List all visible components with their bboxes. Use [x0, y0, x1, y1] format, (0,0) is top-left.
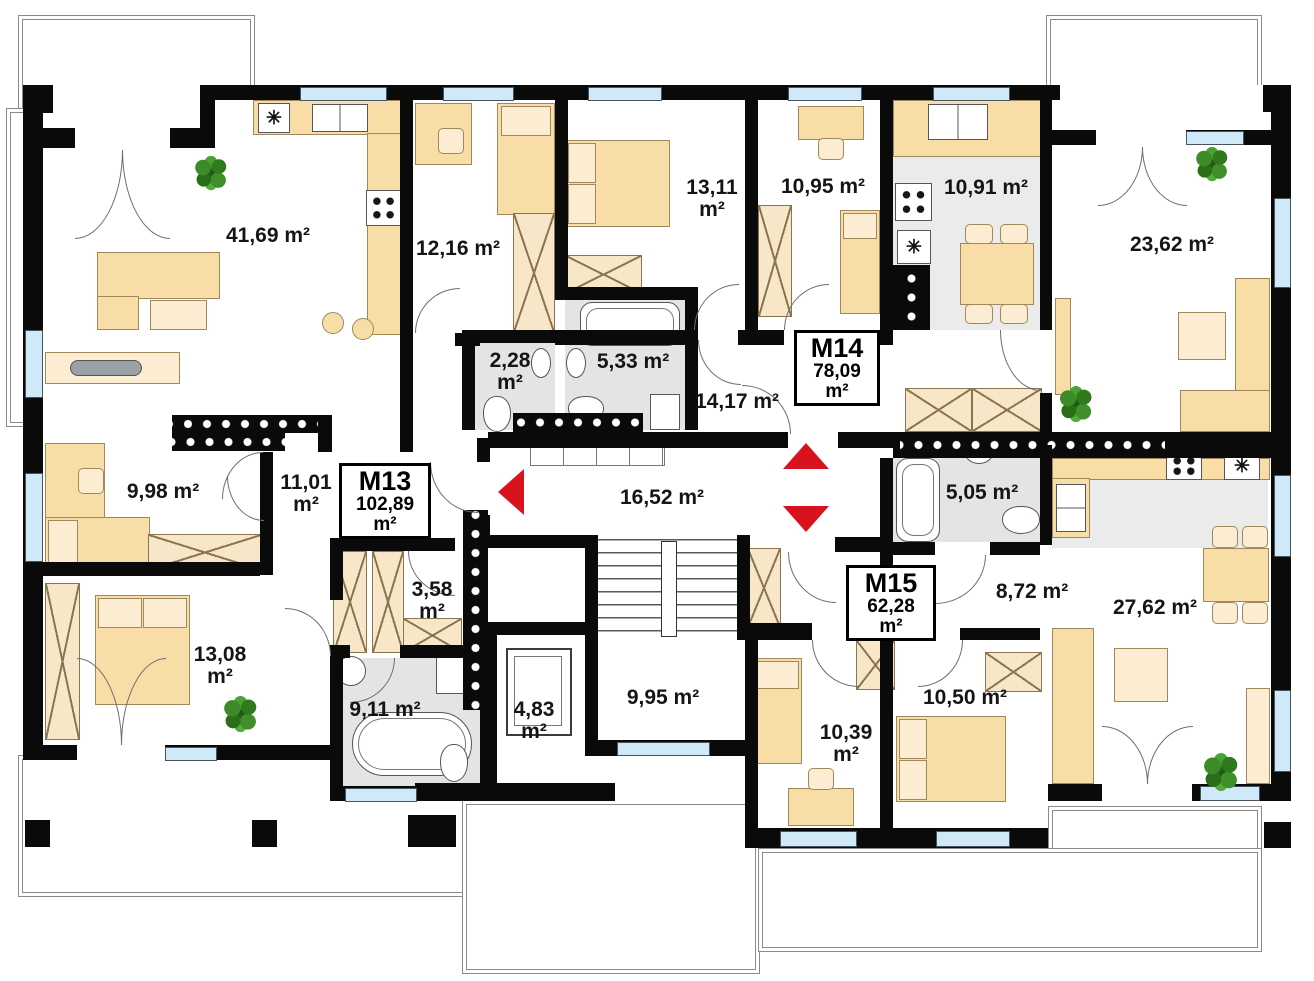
- toilet: [1002, 506, 1040, 534]
- wall: [880, 85, 893, 330]
- wall: [488, 432, 788, 448]
- kitchen-sink: [928, 104, 988, 140]
- tv-cabinet: [1246, 688, 1270, 784]
- pillow: [899, 719, 927, 759]
- window: [780, 831, 857, 847]
- wall: [585, 535, 598, 756]
- window: [1274, 690, 1291, 772]
- chair: [818, 138, 844, 160]
- fridge-icon: ✳: [258, 103, 290, 133]
- apartment-code: M15: [855, 569, 927, 597]
- wall: [330, 652, 343, 786]
- room-label-13-08: 13,08 m²: [194, 644, 247, 688]
- window: [1274, 198, 1291, 288]
- pillow: [568, 143, 596, 183]
- plant-icon: [222, 695, 259, 733]
- apartment-label-m14: M14 78,09 m²: [794, 330, 880, 406]
- apartment-code: M13: [348, 467, 422, 495]
- wardrobe: [747, 548, 781, 628]
- tv-cabinet: [1055, 298, 1071, 395]
- kitchen-counter: [367, 133, 402, 335]
- window: [345, 788, 417, 802]
- stair-stringer: [661, 541, 677, 637]
- window: [443, 87, 514, 101]
- room-label-12-16: 12,16 m²: [416, 238, 500, 260]
- cabinet-dotted: [893, 265, 930, 330]
- chair: [1212, 526, 1238, 548]
- room-label-3-58: 3,58 m²: [412, 579, 453, 623]
- glass-block-wall: [513, 413, 643, 432]
- room-label-8-72: 8,72 m²: [996, 581, 1068, 603]
- wall: [1040, 100, 1052, 330]
- plant-icon: [193, 155, 229, 191]
- room-label-10-50: 10,50 m²: [923, 687, 1007, 709]
- room-label-13-11: 13,11 m²: [686, 177, 737, 221]
- wall: [455, 333, 480, 346]
- wall: [400, 335, 413, 452]
- door-opening: [77, 743, 165, 762]
- chair: [965, 224, 993, 244]
- wall: [990, 542, 1040, 555]
- room-label-10-91: 10,91 m²: [944, 177, 1028, 199]
- window: [936, 831, 1010, 847]
- wall: [415, 783, 615, 801]
- chair: [965, 304, 993, 324]
- sofa: [97, 252, 220, 299]
- window: [1274, 475, 1291, 557]
- elevator-up-arrow-icon: [783, 443, 829, 469]
- glass-block-wall: [172, 415, 318, 433]
- apartment-area: 62,28 m²: [855, 597, 927, 637]
- wall: [745, 640, 758, 828]
- wall: [330, 551, 343, 600]
- glass-block-wall: [900, 437, 1165, 453]
- room-label-5-05: 5,05 m²: [946, 482, 1018, 504]
- wall: [555, 85, 568, 300]
- washbasin: [566, 348, 586, 378]
- stove-icon: [366, 190, 401, 226]
- wall: [200, 85, 215, 148]
- stool: [352, 318, 374, 340]
- pouf: [1114, 648, 1168, 702]
- room-label-10-95: 10,95 m²: [781, 176, 865, 198]
- chair: [78, 468, 104, 494]
- window: [588, 87, 662, 101]
- apartment-area: 78,09 m²: [803, 362, 871, 402]
- room-label-4-83: 4,83 m²: [514, 699, 555, 743]
- wardrobe: [372, 551, 404, 653]
- glass-block-wall: [172, 433, 285, 451]
- pillow: [843, 213, 877, 239]
- elevator-down-arrow-icon: [783, 506, 829, 532]
- wall: [880, 640, 893, 828]
- window: [617, 742, 710, 756]
- apartment-label-m13: M13 102,89 m²: [339, 463, 431, 539]
- chair: [438, 128, 464, 154]
- pillow: [143, 598, 187, 628]
- wall: [23, 113, 43, 760]
- sofa: [1235, 278, 1270, 394]
- room-label-9-11: 9,11 m²: [349, 699, 420, 721]
- room-label-9-95: 9,95 m²: [627, 687, 699, 709]
- fridge-icon: ✳: [897, 230, 931, 264]
- wall: [477, 438, 490, 462]
- wardrobe: [972, 388, 1042, 432]
- dining-table: [1203, 548, 1269, 602]
- chair: [1242, 526, 1268, 548]
- apartment-code: M14: [803, 334, 871, 362]
- wall: [462, 343, 475, 430]
- wall: [330, 645, 350, 658]
- room-label-living-m13: 41,69 m²: [226, 225, 310, 247]
- chair: [1000, 224, 1028, 244]
- desk: [798, 106, 864, 140]
- wall: [480, 635, 497, 790]
- room-label-5-33: 5,33 m²: [597, 351, 669, 373]
- kitchen-sink: [1056, 484, 1086, 532]
- pillow: [501, 106, 551, 136]
- window: [165, 747, 217, 761]
- wall: [330, 538, 455, 551]
- terrace-pillar: [25, 820, 50, 847]
- coffee-table: [150, 300, 207, 330]
- terrace-pillar: [408, 815, 456, 847]
- room-label-9-98: 9,98 m²: [127, 481, 199, 503]
- door-opening: [75, 126, 170, 150]
- terrace-pillar: [1264, 822, 1291, 848]
- table: [1178, 312, 1226, 360]
- pillow: [899, 760, 927, 800]
- washbasin: [531, 348, 551, 378]
- wall: [745, 85, 758, 330]
- wall: [480, 622, 585, 635]
- stool: [322, 312, 344, 334]
- window: [25, 330, 43, 398]
- room-label-27-62: 27,62 m²: [1113, 597, 1197, 619]
- apartment-area: 102,89 m²: [348, 495, 422, 535]
- wardrobe: [905, 388, 972, 432]
- bathtub: [896, 458, 940, 542]
- terrace-bottom-right: [758, 848, 1262, 952]
- room-label-2-28: 2,28 m²: [490, 350, 531, 394]
- chair: [1000, 304, 1028, 324]
- wall: [838, 432, 893, 448]
- window: [933, 87, 1010, 101]
- wall: [745, 623, 812, 640]
- washing-machine: [650, 394, 680, 430]
- wardrobe: [45, 583, 80, 740]
- wall: [318, 415, 332, 452]
- wall: [880, 542, 935, 555]
- apartment-label-m15: M15 62,28 m²: [846, 565, 936, 641]
- chair: [808, 768, 834, 790]
- sofa: [1052, 628, 1094, 784]
- door-opening: [1096, 128, 1186, 147]
- plant-icon: [1202, 752, 1240, 792]
- plant-icon: [1058, 385, 1094, 423]
- wall: [43, 562, 260, 576]
- window: [788, 87, 862, 101]
- toilet: [440, 744, 468, 782]
- corridor-arrow-icon: [498, 469, 524, 515]
- room-label-14-17: 14,17 m²: [695, 391, 779, 413]
- room-label-10-39: 10,39 m²: [820, 722, 873, 766]
- pillow: [98, 598, 142, 628]
- pillow: [753, 661, 799, 689]
- pillow: [568, 184, 596, 224]
- room-label-16-52: 16,52 m²: [620, 487, 704, 509]
- chair: [1212, 602, 1238, 624]
- sofa: [97, 296, 139, 330]
- wall: [555, 287, 698, 300]
- wall: [400, 85, 413, 335]
- terrace-pillar: [252, 820, 277, 847]
- wall: [488, 535, 585, 548]
- wall: [960, 628, 1040, 640]
- room-label-11-01: 11,01 m²: [280, 472, 331, 516]
- wardrobe: [758, 205, 792, 317]
- dining-table: [960, 243, 1034, 305]
- window: [300, 87, 387, 101]
- desk: [788, 788, 854, 826]
- floor-plan: ✳ ✳: [0, 0, 1314, 981]
- room-label-23-62: 23,62 m²: [1130, 234, 1214, 256]
- pillow: [48, 520, 78, 568]
- wall: [1040, 445, 1052, 545]
- tv: [70, 360, 142, 376]
- entrance-porch: [462, 800, 760, 974]
- wall: [23, 85, 53, 113]
- toilet: [483, 396, 511, 432]
- kitchen-sink: [312, 104, 368, 132]
- window: [1186, 131, 1244, 145]
- sofa: [1180, 390, 1270, 432]
- window: [25, 473, 43, 562]
- stove-icon: [895, 183, 932, 221]
- wardrobe: [513, 213, 555, 333]
- wall: [1040, 393, 1052, 435]
- plant-icon: [1194, 146, 1230, 182]
- chair: [1242, 602, 1268, 624]
- door-opening: [1102, 782, 1192, 803]
